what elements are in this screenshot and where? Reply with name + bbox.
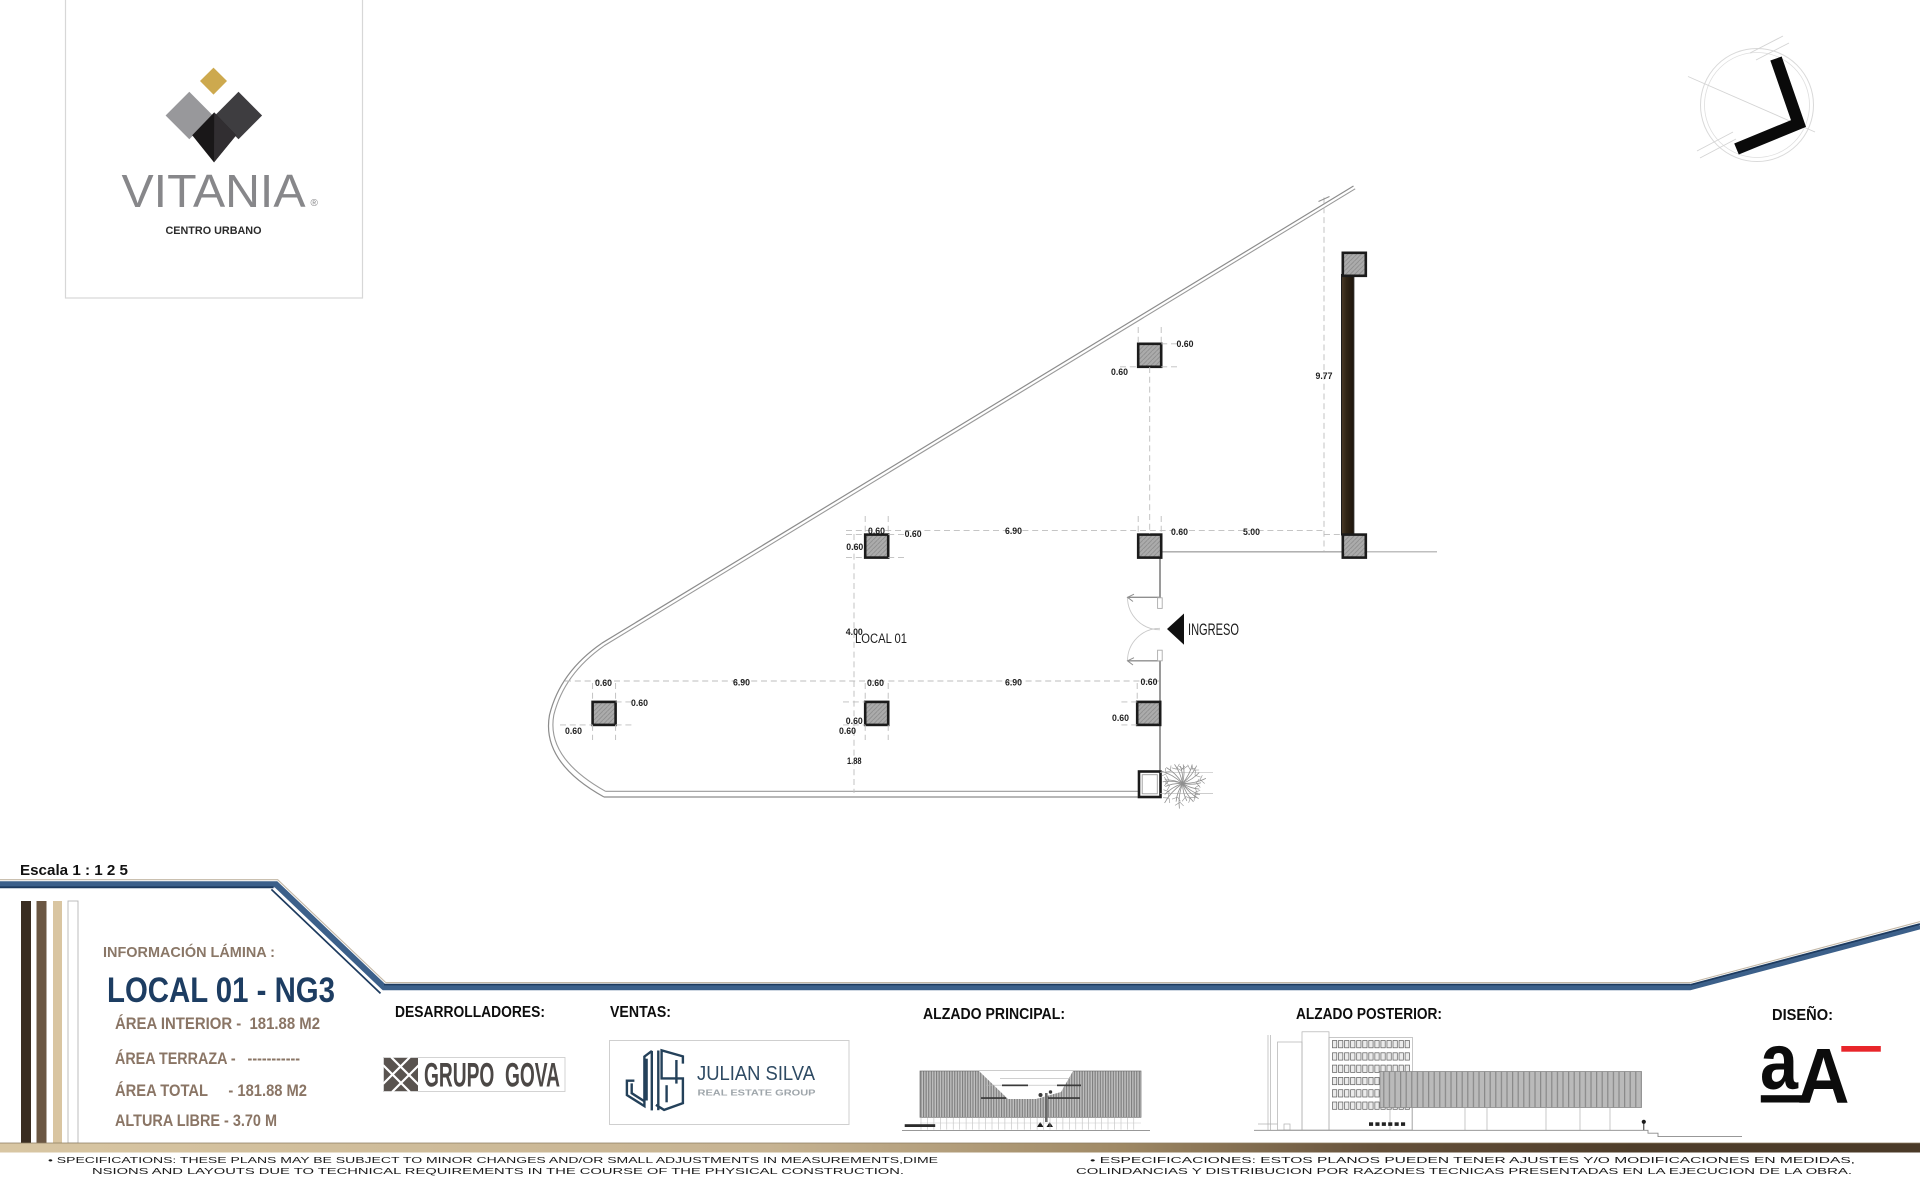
svg-text:0.60: 0.60 bbox=[868, 526, 885, 536]
svg-text:REAL ESTATE GROUP: REAL ESTATE GROUP bbox=[698, 1089, 817, 1098]
svg-text:0.60: 0.60 bbox=[839, 726, 856, 736]
svg-text:a: a bbox=[1760, 1017, 1798, 1106]
svg-text:0.60: 0.60 bbox=[1171, 527, 1188, 537]
svg-text:0.60: 0.60 bbox=[565, 726, 582, 736]
svg-text:ALZADO PRINCIPAL:: ALZADO PRINCIPAL: bbox=[923, 1006, 1065, 1023]
svg-text:6.90: 6.90 bbox=[1005, 526, 1022, 536]
svg-text:Escala 1 : 1 2 5: Escala 1 : 1 2 5 bbox=[20, 862, 128, 879]
svg-text:1.88: 1.88 bbox=[847, 756, 862, 766]
svg-text:NSIONS AND LAYOUTS DUE TO TECH: NSIONS AND LAYOUTS DUE TO TECHNICAL REQU… bbox=[92, 1167, 904, 1176]
svg-text:ALZADO POSTERIOR:: ALZADO POSTERIOR: bbox=[1296, 1006, 1442, 1023]
svg-text:0.60: 0.60 bbox=[846, 716, 863, 726]
svg-text:LOCAL 01 - NG3: LOCAL 01 - NG3 bbox=[107, 971, 335, 1010]
svg-text:®: ® bbox=[311, 198, 319, 209]
svg-text:• ESPECIFICACIONES: ESTOS PLAN: • ESPECIFICACIONES: ESTOS PLANOS PUEDEN … bbox=[1090, 1156, 1855, 1165]
svg-text:6.90: 6.90 bbox=[733, 677, 750, 687]
svg-text:DESARROLLADORES:: DESARROLLADORES: bbox=[395, 1004, 545, 1021]
svg-text:VENTAS:: VENTAS: bbox=[610, 1004, 671, 1021]
svg-text:0.60: 0.60 bbox=[905, 529, 922, 539]
svg-text:0.60: 0.60 bbox=[1111, 367, 1128, 377]
svg-text:• SPECIFICATIONS: THESE PLANS: • SPECIFICATIONS: THESE PLANS MAY BE SUB… bbox=[48, 1156, 939, 1165]
svg-text:9.77: 9.77 bbox=[1316, 371, 1333, 381]
svg-text:0.60: 0.60 bbox=[1177, 339, 1194, 349]
svg-text:CENTRO URBANO: CENTRO URBANO bbox=[166, 225, 262, 237]
svg-text:0.60: 0.60 bbox=[867, 678, 884, 688]
svg-text:0.60: 0.60 bbox=[595, 678, 612, 688]
svg-text:VITANIA: VITANIA bbox=[122, 165, 306, 217]
svg-text:COLINDANCIAS Y DISTRIBUCION PO: COLINDANCIAS Y DISTRIBUCION POR RAZONES … bbox=[1076, 1167, 1852, 1176]
svg-text:ÁREA TOTAL - 181.88 M2: ÁREA TOTAL - 181.88 M2 bbox=[115, 1081, 307, 1100]
svg-text:0.60: 0.60 bbox=[846, 542, 863, 552]
svg-text:JULIAN SILVA: JULIAN SILVA bbox=[697, 1062, 815, 1085]
svg-text:A: A bbox=[1798, 1032, 1850, 1120]
svg-text:6.90: 6.90 bbox=[1005, 677, 1022, 687]
svg-text:LOCAL 01: LOCAL 01 bbox=[855, 631, 907, 646]
svg-text:ÁREA INTERIOR - 181.88 M2: ÁREA INTERIOR - 181.88 M2 bbox=[115, 1014, 320, 1033]
svg-text:5.00: 5.00 bbox=[1243, 527, 1260, 537]
svg-text:GRUPO GOVA: GRUPO GOVA bbox=[424, 1057, 560, 1095]
svg-text:0.60: 0.60 bbox=[1112, 713, 1129, 723]
svg-text:INGRESO: INGRESO bbox=[1188, 620, 1239, 639]
svg-text:INFORMACIÓN LÁMINA :: INFORMACIÓN LÁMINA : bbox=[103, 943, 275, 961]
svg-text:0.60: 0.60 bbox=[1141, 677, 1158, 687]
svg-text:ALTURA LIBRE - 3.70 M: ALTURA LIBRE - 3.70 M bbox=[115, 1111, 277, 1130]
svg-text:0.60: 0.60 bbox=[631, 698, 648, 708]
svg-text:ÁREA TERRAZA - -----------: ÁREA TERRAZA - ----------- bbox=[115, 1049, 300, 1068]
